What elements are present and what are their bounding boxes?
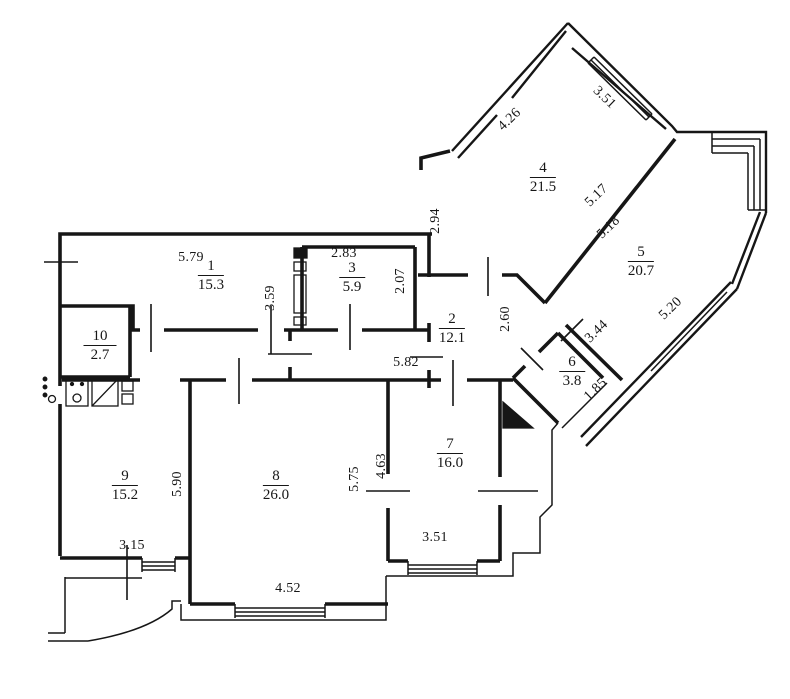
room-label-2: 212.1: [439, 311, 465, 346]
dimension-label: 5.82: [393, 355, 419, 371]
dimension-label: 1.85: [581, 375, 611, 404]
dimension-label: 4.26: [495, 105, 525, 134]
dimension-label: 2.83: [331, 246, 357, 262]
room-area: 5.9: [339, 278, 365, 295]
room-area: 20.7: [628, 262, 654, 279]
dimension-label: 2.94: [428, 208, 444, 234]
room-area: 21.5: [530, 178, 556, 195]
dimension-label: 4.52: [275, 581, 301, 597]
room-area: 2.7: [84, 346, 117, 363]
dimension-label: 3.51: [422, 530, 448, 546]
room-area: 26.0: [263, 486, 289, 503]
room-area: 15.3: [198, 276, 224, 293]
dimension-label: 3.15: [119, 538, 145, 554]
dimension-label: 5.17: [582, 181, 612, 210]
room-label-10: 102.7: [84, 328, 117, 363]
dimension-label: 3.59: [263, 285, 279, 311]
dimension-label: 2.07: [393, 268, 409, 294]
room-label-3: 35.9: [339, 260, 365, 295]
dimension-label: 5.18: [594, 213, 624, 242]
room-number: 9: [112, 468, 138, 486]
floor-plan: 115.3212.135.9421.5520.763.8716.0826.091…: [0, 0, 790, 699]
dimension-label: 5.79: [178, 250, 204, 266]
room-number: 7: [437, 436, 463, 454]
room-number: 6: [559, 354, 585, 372]
room-number: 10: [84, 328, 117, 346]
room-number: 5: [628, 244, 654, 262]
room-area: 15.2: [112, 486, 138, 503]
room-label-5: 520.7: [628, 244, 654, 279]
room-label-6: 63.8: [559, 354, 585, 389]
dimension-label: 5.90: [170, 471, 186, 497]
dimension-label: 5.75: [347, 466, 363, 492]
dimension-label: 3.44: [582, 317, 612, 346]
dimension-label: 2.60: [498, 306, 514, 332]
labels-layer: 115.3212.135.9421.5520.763.8716.0826.091…: [0, 0, 790, 699]
room-number: 8: [263, 468, 289, 486]
dimension-label: 5.20: [656, 294, 686, 323]
room-label-7: 716.0: [437, 436, 463, 471]
room-area: 16.0: [437, 454, 463, 471]
room-label-8: 826.0: [263, 468, 289, 503]
room-label-4: 421.5: [530, 160, 556, 195]
room-area: 3.8: [559, 372, 585, 389]
dimension-label: 4.63: [374, 453, 390, 479]
dimension-label: 3.51: [589, 83, 619, 112]
room-number: 2: [439, 311, 465, 329]
room-number: 4: [530, 160, 556, 178]
room-area: 12.1: [439, 329, 465, 346]
room-number: 3: [339, 260, 365, 278]
room-label-9: 915.2: [112, 468, 138, 503]
